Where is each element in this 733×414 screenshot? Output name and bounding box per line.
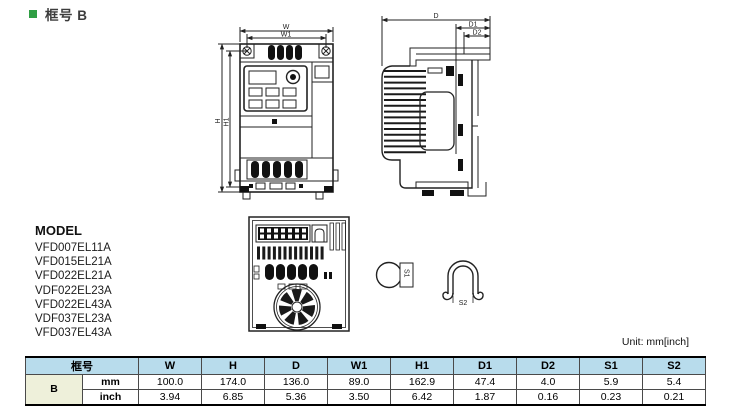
dim-header-w: W [139,357,202,375]
model-item: VFD007EL11A [35,241,112,255]
value-cell: 100.0 [139,375,202,390]
dim-header-h1: H1 [391,357,454,375]
value-cell: 0.23 [580,390,643,405]
rj45-port [312,225,327,242]
bottom-view-drawing [248,216,350,334]
value-cell: 3.94 [139,390,202,405]
value-cell: 0.16 [517,390,580,405]
manual-page: 框号 B [0,0,733,414]
section-title: 框号 B [45,4,88,24]
dim-label-w1: W1 [281,32,292,39]
model-item: VFD022EL43A [35,298,112,312]
section-header: 框号 B [29,4,88,24]
cooling-fan [274,284,320,330]
model-list-block: MODEL VFD007EL11A VFD015EL21A VFD022EL21… [35,223,112,340]
model-item: VDF022EL23A [35,284,112,298]
frame-name-cell: B [26,375,83,405]
model-item: VDF037EL23A [35,312,112,326]
front-view-drawing: W W1 H H1 [216,24,351,206]
green-square-bullet-icon [29,10,37,18]
dim-header-w1: W1 [328,357,391,375]
value-cell: 47.4 [454,375,517,390]
dim-label-d2: D2 [473,30,482,37]
keypad-display [249,71,276,84]
value-cell: 4.0 [517,375,580,390]
value-cell: 5.36 [265,390,328,405]
unit-cell-mm: mm [83,375,139,390]
s1-detail-drawing: S1 [374,256,420,294]
front-bottom-terminals [251,161,303,178]
dim-header-h: H [202,357,265,375]
power-terminals [265,264,332,280]
value-cell: 3.50 [328,390,391,405]
model-item: VFD022EL21A [35,269,112,283]
value-cell: 136.0 [265,375,328,390]
s2-detail-drawing: S2 [436,250,492,308]
value-cell: 6.42 [391,390,454,405]
model-item: VFD015EL21A [35,255,112,269]
value-cell: 5.9 [580,375,643,390]
table-header-row: 框号 W H D W1 H1 D1 D2 S1 S2 [26,357,706,375]
dim-header-d1: D1 [454,357,517,375]
dim-label-d1: D1 [469,22,478,29]
frame-col-header: 框号 [26,357,139,375]
dim-header-s2: S2 [643,357,706,375]
value-cell: 162.9 [391,375,454,390]
dim-header-d2: D2 [517,357,580,375]
value-cell: 89.0 [328,375,391,390]
value-cell: 1.87 [454,390,517,405]
front-top-vents [268,45,302,60]
value-cell: 0.21 [643,390,706,405]
value-cell: 5.4 [643,375,706,390]
dimensions-table: 框号 W H D W1 H1 D1 D2 S1 S2 B mm 100.0 17… [25,356,706,406]
model-list-heading: MODEL [35,223,112,238]
dim-label-d: D [433,13,438,20]
unit-note: Unit: mm[inch] [622,336,689,348]
model-list: VFD007EL11A VFD015EL21A VFD022EL21A VDF0… [35,241,112,340]
dim-label-s2: S2 [459,300,468,307]
dim-label-w: W [283,24,290,31]
side-view-drawing: D D1 D2 [372,4,502,204]
value-cell: 6.85 [202,390,265,405]
dim-label-h1: H1 [224,117,231,126]
table-row-inch: inch 3.94 6.85 5.36 3.50 6.42 1.87 0.16 … [26,390,706,405]
table-row-mm: B mm 100.0 174.0 136.0 89.0 162.9 47.4 4… [26,375,706,390]
dim-header-d: D [265,357,328,375]
unit-cell-inch: inch [83,390,139,405]
dim-header-s1: S1 [580,357,643,375]
model-item: VFD037EL43A [35,326,112,340]
dim-label-s1: S1 [403,269,410,278]
control-terminal-block [256,225,310,242]
value-cell: 174.0 [202,375,265,390]
dim-label-h: H [215,118,222,123]
